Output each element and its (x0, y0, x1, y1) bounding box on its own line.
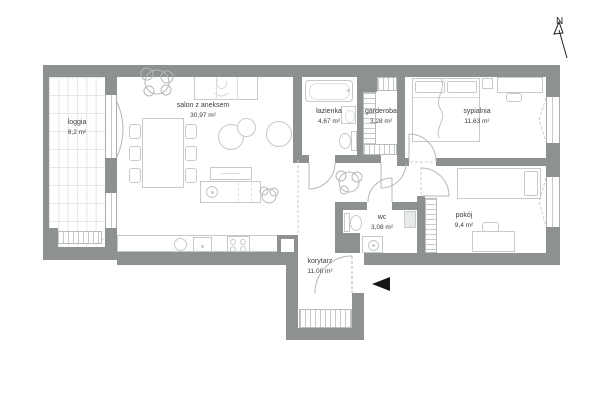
room-label-salon: salon z aneksem30,97 m² (177, 100, 230, 121)
wall-segment (397, 77, 405, 163)
balcony-door (117, 102, 123, 157)
room-label-korytarz: korytarz11,08 m² (307, 256, 332, 277)
room-label-lazienka: łazienka4,67 m² (316, 106, 342, 127)
wall-segment (286, 253, 298, 340)
wc-sink-icon (404, 211, 416, 228)
island-sink-drain (211, 191, 214, 194)
north-label: N (556, 16, 563, 27)
wall-segment (117, 252, 298, 265)
balcony-window (105, 193, 117, 228)
pillow-icon (447, 81, 477, 93)
room-label-pokoj: pokój9,4 m² (455, 210, 473, 231)
wc-door (368, 178, 392, 202)
washing-machine-icon (362, 236, 383, 253)
wall-segment (546, 65, 560, 97)
room-label-sypialnia: sypialnia11,63 m² (463, 106, 490, 127)
desk-icon (497, 77, 543, 93)
wall-segment (105, 65, 117, 95)
wall-segment (546, 227, 560, 265)
bedroom-window (546, 97, 560, 143)
bathroom-sink-icon (341, 106, 356, 124)
wall-segment (417, 196, 425, 253)
wall-segment (397, 158, 409, 166)
loggia-planter-hatch (57, 231, 102, 244)
wall-segment (335, 155, 381, 163)
room-label-garderoba: garderoba3,28 m² (365, 106, 397, 127)
desk-icon (472, 231, 515, 252)
pillow-icon (415, 81, 445, 93)
wall-segment (392, 202, 417, 210)
wall-segment (293, 77, 302, 158)
garderoba-shelving-bottom (363, 144, 397, 155)
sink-drain (201, 245, 204, 248)
entrance-arrow (372, 277, 390, 291)
wall-segment (546, 143, 560, 177)
wall-segment (286, 328, 364, 340)
chair-icon (129, 124, 141, 139)
tv-unit-icon (210, 167, 252, 180)
bathroom-door (309, 163, 335, 189)
room-label-wc: wc3,08 m² (371, 212, 393, 233)
wall-segment (293, 155, 309, 163)
desk-chair-icon (482, 222, 499, 232)
room-label-loggia: loggia8,2 m² (68, 117, 87, 138)
wall-segment (364, 253, 560, 265)
wall-segment (105, 228, 117, 252)
shaft-wall (338, 233, 360, 253)
nightstand-icon (482, 78, 493, 89)
cooktop-icon (227, 236, 250, 252)
toilet-icon (339, 133, 351, 149)
wall-segment (105, 158, 117, 193)
chair-icon (185, 146, 197, 161)
room-window (546, 177, 560, 227)
desk-chair-icon (506, 93, 522, 102)
bathtub-icon (305, 80, 353, 102)
shaft-opening (281, 239, 294, 252)
toilet-icon (350, 215, 362, 231)
balcony-window (105, 95, 117, 158)
wall-segment (436, 158, 546, 166)
loggia-floor-tiles (49, 77, 105, 247)
floor-plan: loggia8,2 m² salon z aneksem30,97 m² łaz… (0, 0, 600, 400)
chair-icon (129, 146, 141, 161)
wall-segment (357, 92, 363, 155)
dining-table-icon (142, 118, 184, 188)
kitchen-appliance-icon (174, 238, 187, 251)
garderoba-shelving-top (377, 77, 397, 91)
plant-icon (336, 171, 362, 194)
wall-segment (43, 65, 49, 232)
armchair-icon (266, 121, 292, 147)
side-table-icon (237, 118, 256, 137)
room-door (421, 168, 449, 196)
chair-icon (129, 168, 141, 183)
korytarz-wardrobe-hatch (299, 309, 352, 328)
pokoj-wardrobe-hatch (425, 198, 437, 253)
shaft-wall (357, 77, 377, 92)
wall-segment (43, 65, 560, 77)
plant-icon (260, 187, 278, 203)
north-arrow: N (554, 16, 567, 58)
chair-icon (185, 168, 197, 183)
pillow-icon (524, 171, 538, 196)
chair-icon (185, 124, 197, 139)
wardrobe-door (381, 163, 406, 188)
